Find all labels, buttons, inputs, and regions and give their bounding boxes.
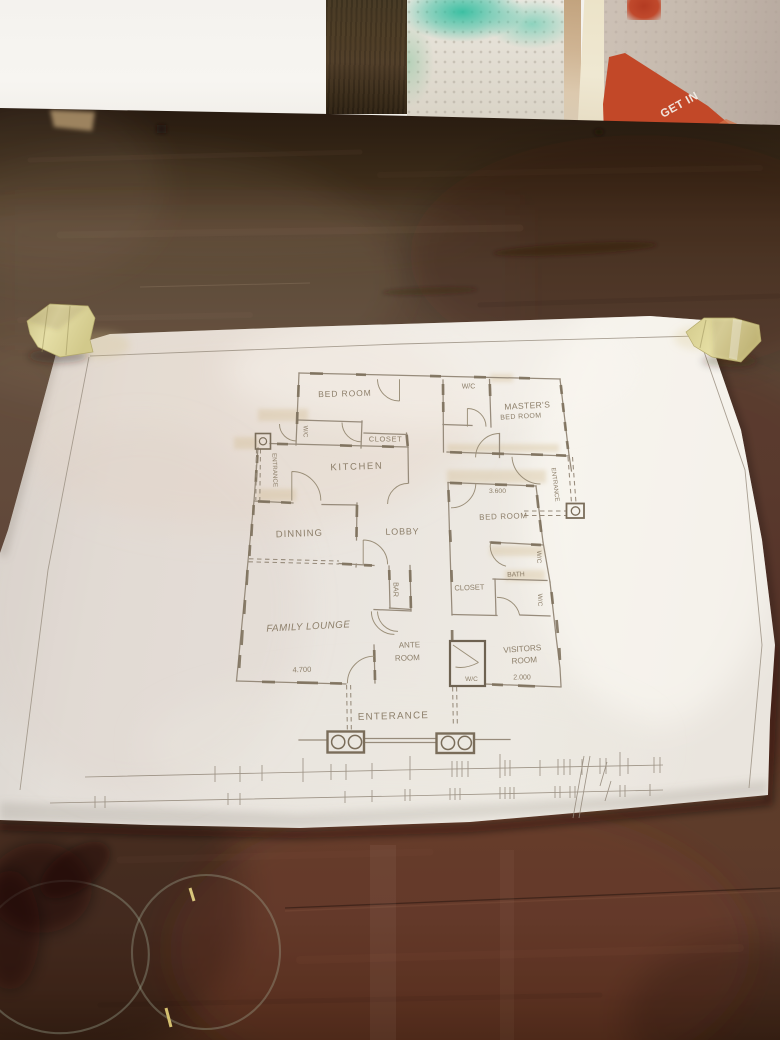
svg-text:W/C: W/C <box>465 676 478 683</box>
svg-text:4.700: 4.700 <box>292 665 311 675</box>
svg-text:CLOSET: CLOSET <box>369 435 403 444</box>
svg-text:BED ROOM: BED ROOM <box>479 511 528 522</box>
svg-text:W/C: W/C <box>462 384 476 391</box>
svg-text:ENTRANCE: ENTRANCE <box>270 453 278 487</box>
svg-text:W/C: W/C <box>536 594 543 607</box>
svg-text:BAR: BAR <box>392 582 401 597</box>
svg-text:2.000: 2.000 <box>513 675 531 682</box>
svg-text:W/C: W/C <box>302 426 308 438</box>
svg-text:LOBBY: LOBBY <box>385 526 419 537</box>
svg-text:KITCHEN: KITCHEN <box>330 461 383 474</box>
svg-text:BATH: BATH <box>507 571 525 579</box>
svg-text:CLOSET: CLOSET <box>454 582 485 592</box>
svg-text:ROOM: ROOM <box>395 653 421 663</box>
svg-text:DINNING: DINNING <box>276 528 323 541</box>
svg-text:3.600: 3.600 <box>489 488 506 495</box>
svg-text:ROOM: ROOM <box>511 655 537 666</box>
svg-text:ANTE: ANTE <box>399 640 421 650</box>
svg-text:W/C: W/C <box>535 551 542 564</box>
svg-text:ENTERANCE: ENTERANCE <box>358 710 429 723</box>
svg-text:BED ROOM: BED ROOM <box>318 388 372 399</box>
